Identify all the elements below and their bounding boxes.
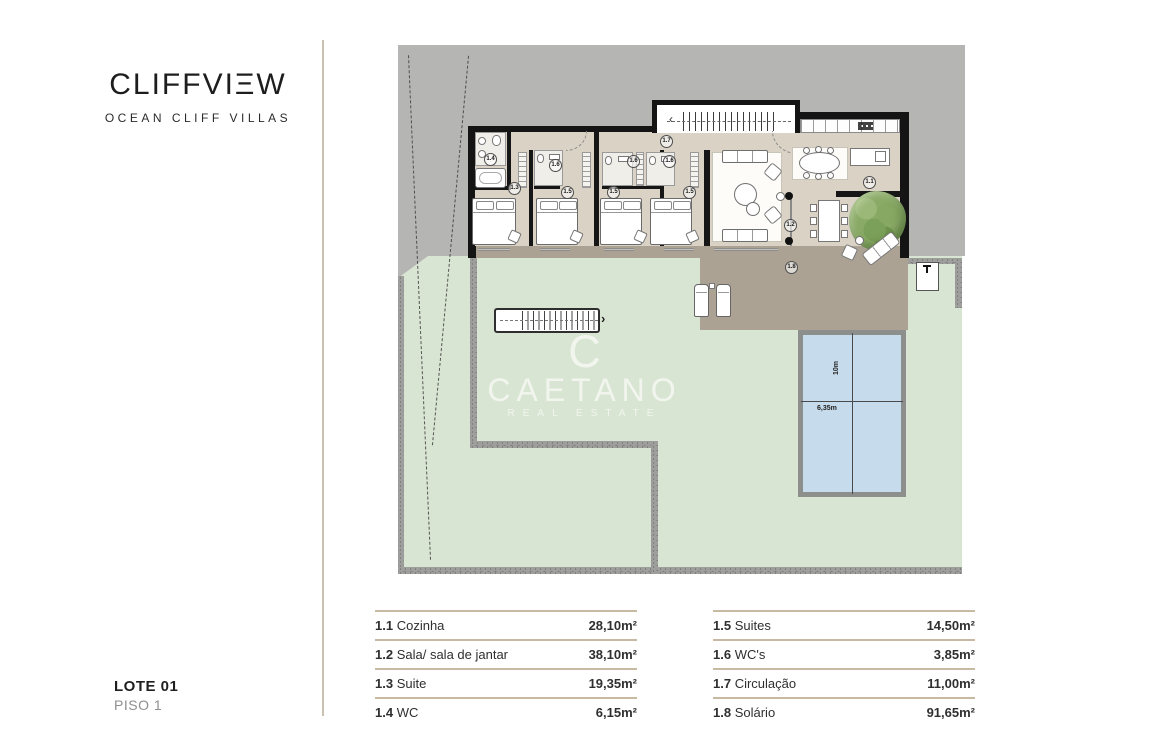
brand-logo: CLIFFVIΞW <box>88 68 308 102</box>
legend-row: 1.6 WC's 3,85m² <box>713 639 975 668</box>
legend-area: 19,35m² <box>589 676 637 691</box>
room-label-suite-2: 1.5 <box>561 186 574 199</box>
outdoor-chair-icon <box>841 230 848 238</box>
legend-num: 1.1 <box>375 618 393 633</box>
bed <box>650 198 692 245</box>
toilet-icon <box>537 154 544 163</box>
room-label-circulation: 1.7 <box>660 135 673 148</box>
window <box>540 248 570 251</box>
cooktop-icon <box>858 122 873 130</box>
side-table-icon <box>855 236 864 245</box>
legend-name: Cozinha <box>397 618 445 633</box>
room-label-wc-2: 1.6 <box>549 159 562 172</box>
legend-name: Circulação <box>735 676 796 691</box>
wall-suite-living <box>704 150 710 246</box>
stair-centerline <box>667 121 791 122</box>
legend-name: Suite <box>397 676 427 691</box>
legend-area: 6,15m² <box>596 705 637 720</box>
window <box>604 248 634 251</box>
kitchen-island <box>850 148 890 166</box>
legend-area: 38,10m² <box>589 647 637 662</box>
legend-name: WC's <box>735 647 766 662</box>
wardrobe <box>518 152 527 188</box>
outdoor-chair-icon <box>841 217 848 225</box>
side-table-icon <box>709 283 715 289</box>
wall-suite-2-3 <box>594 132 599 246</box>
legend-name: Suites <box>735 618 771 633</box>
outdoor-table-icon <box>818 200 840 242</box>
pool: 10m 6,35m <box>798 330 906 497</box>
window <box>664 248 694 251</box>
room-label-suite-master: 1.3 <box>508 182 521 195</box>
legend-area: 91,65m² <box>927 705 975 720</box>
building-west-post <box>468 246 476 258</box>
stone-wall-step-horizontal <box>470 441 658 448</box>
stone-wall-step-vertical-2 <box>651 441 658 574</box>
outdoor-shower <box>916 262 939 291</box>
outdoor-chair-icon <box>810 204 817 212</box>
legend-area: 11,00m² <box>927 676 975 691</box>
legend-name: Solário <box>735 705 775 720</box>
dining-table-icon <box>799 152 840 174</box>
pool-length-label: 10m <box>833 361 840 375</box>
legend-row: 1.3 Suite 19,35m² <box>375 668 637 697</box>
watermark: C CAETANO REAL ESTATE <box>462 331 707 419</box>
watermark-tagline: REAL ESTATE <box>462 408 707 419</box>
kitchen-north-wall <box>800 112 904 119</box>
wardrobe <box>690 152 699 188</box>
room-label-wc-4: 1.6 <box>663 155 676 168</box>
vertical-divider <box>322 40 324 716</box>
legend-name: Sala/ sala de jantar <box>397 647 508 662</box>
dining-chair-icon <box>815 146 822 153</box>
legend-right-column: 1.5 Suites 14,50m² 1.6 WC's 3,85m² 1.7 C… <box>713 610 975 726</box>
legend-name: WC <box>397 705 419 720</box>
column-icon <box>785 192 793 200</box>
brand-subtitle: OCEAN CLIFF VILLAS <box>88 111 308 125</box>
sofa <box>722 229 768 242</box>
dining-chair-icon <box>827 172 834 179</box>
coffee-table-icon <box>746 202 760 216</box>
legend-row: 1.8 Solário 91,65m² <box>713 697 975 726</box>
legend-num: 1.4 <box>375 705 393 720</box>
toilet-icon <box>605 156 612 165</box>
legend-row: 1.2 Sala/ sala de jantar 38,10m² <box>375 639 637 668</box>
pool-width-label: 6,35m <box>817 405 837 412</box>
floor-title: PISO 1 <box>114 697 162 713</box>
column-icon <box>785 237 793 245</box>
side-table-icon <box>776 192 785 201</box>
legend-num: 1.7 <box>713 676 731 691</box>
pool-dimension-line <box>852 333 853 494</box>
wall-wc2-south <box>534 186 560 189</box>
dining-chair-icon <box>815 173 822 180</box>
legend-row: 1.5 Suites 14,50m² <box>713 610 975 639</box>
window <box>714 248 778 251</box>
toilet-icon <box>649 156 656 165</box>
deck-main <box>700 258 908 330</box>
legend-row: 1.4 WC 6,15m² <box>375 697 637 726</box>
sink-icon <box>875 151 886 162</box>
legend-num: 1.3 <box>375 676 393 691</box>
legend-row: 1.1 Cozinha 28,10m² <box>375 610 637 639</box>
legend-num: 1.8 <box>713 705 731 720</box>
stone-wall-right <box>955 258 962 308</box>
room-label-wc-3: 1.6 <box>627 155 640 168</box>
window <box>478 248 510 251</box>
brochure-page: CLIFFVIΞW OCEAN CLIFF VILLAS LOTE 01 PIS… <box>0 0 1171 748</box>
sink-icon <box>478 137 486 145</box>
stair-direction-arrow: ‹ <box>669 112 673 126</box>
building-east-wall <box>900 112 909 258</box>
room-label-living: 1.2 <box>784 219 797 232</box>
bathtub-icon <box>475 168 506 188</box>
stone-wall-left <box>398 276 404 574</box>
outdoor-chair-icon <box>810 230 817 238</box>
garden-stairs-arrow: › <box>601 311 605 326</box>
lot-title: LOTE 01 <box>114 678 178 695</box>
wall-suite-1-2 <box>529 150 533 246</box>
watermark-initial: C <box>462 331 707 373</box>
wall-master-wc <box>507 132 511 188</box>
legend-area: 3,85m² <box>934 647 975 662</box>
dining-chair-icon <box>803 147 810 154</box>
room-label-suite-4: 1.5 <box>683 186 696 199</box>
kitchen-counter <box>800 119 900 133</box>
sofa <box>722 150 768 163</box>
dining-chair-icon <box>827 147 834 154</box>
room-label-wc-master: 1.4 <box>484 153 497 166</box>
legend-num: 1.6 <box>713 647 731 662</box>
legend-area: 28,10m² <box>589 618 637 633</box>
brand-block: CLIFFVIΞW OCEAN CLIFF VILLAS <box>88 68 308 125</box>
sun-lounger-icon <box>694 284 709 317</box>
legend-area: 14,50m² <box>927 618 975 633</box>
stone-wall-bottom <box>398 567 962 574</box>
pool-dimension-line <box>801 401 903 402</box>
sun-lounger-icon <box>716 284 731 317</box>
stairs-enclosure: ‹ <box>652 100 800 133</box>
room-label-suite-3: 1.5 <box>607 186 620 199</box>
room-label-kitchen: 1.1 <box>863 176 876 189</box>
toilet-icon <box>492 135 501 146</box>
legend-left-column: 1.1 Cozinha 28,10m² 1.2 Sala/ sala de ja… <box>375 610 637 726</box>
legend-row: 1.7 Circulação 11,00m² <box>713 668 975 697</box>
watermark-name: CAETANO <box>462 375 707 405</box>
legend-num: 1.2 <box>375 647 393 662</box>
room-label-solarium: 1.8 <box>785 261 798 274</box>
legend-num: 1.5 <box>713 618 731 633</box>
outdoor-chair-icon <box>810 217 817 225</box>
dining-chair-icon <box>803 172 810 179</box>
outdoor-chair-icon <box>841 204 848 212</box>
wardrobe <box>582 152 591 188</box>
